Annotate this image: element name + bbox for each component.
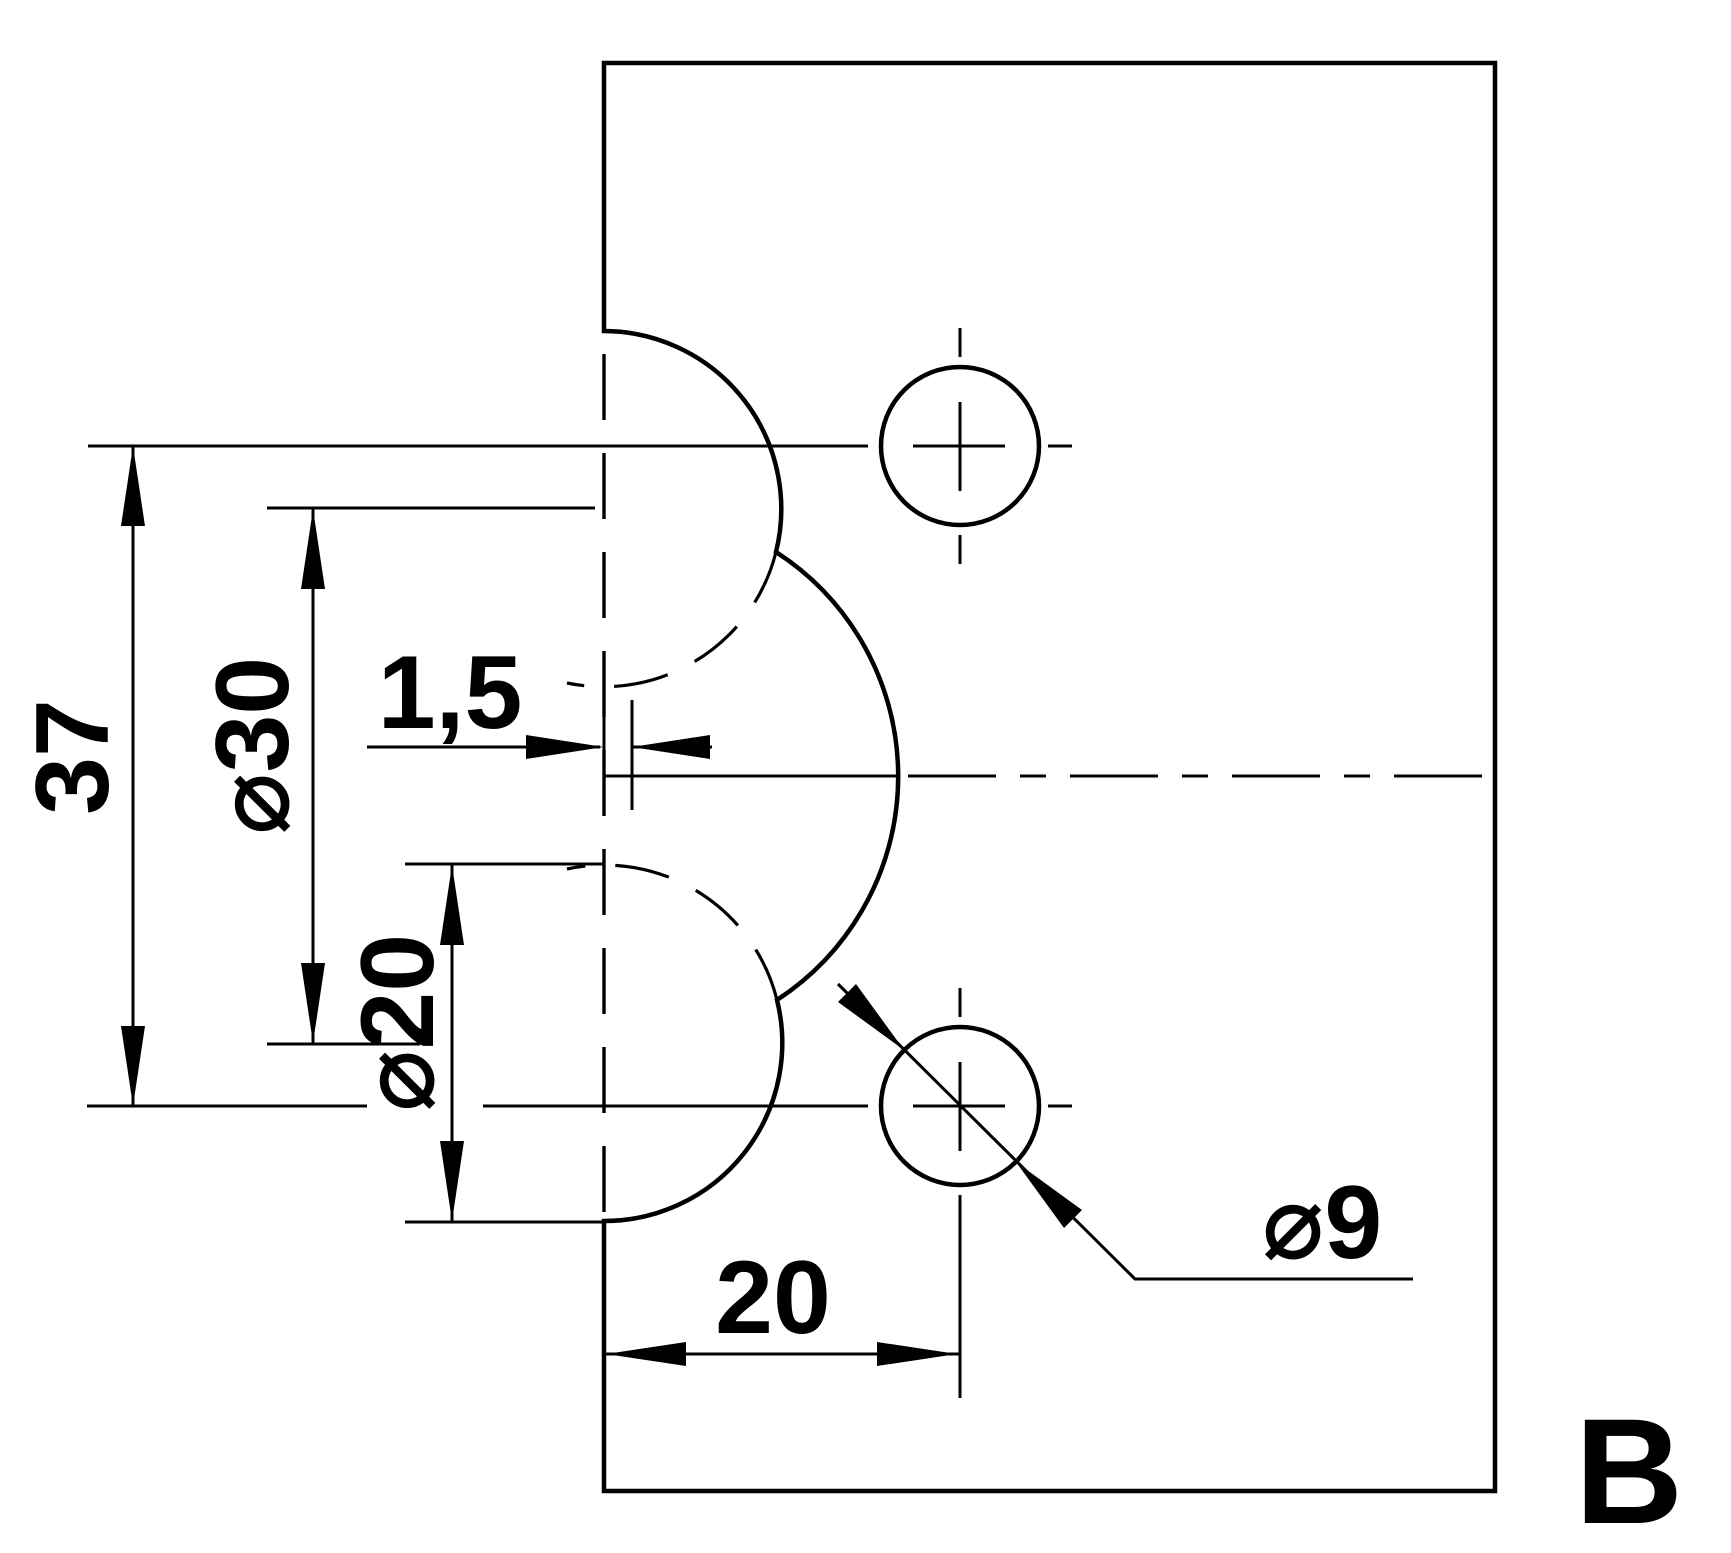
bottom-small-cutout-hidden-arc	[567, 865, 777, 1000]
dim-d30-arrow-down	[301, 963, 325, 1043]
dim-37-label: 37	[15, 699, 131, 815]
dim-20-arrow-right	[877, 1342, 957, 1366]
top-small-cutout-hidden-arc	[567, 552, 776, 687]
dim-d20-label: ⌀20	[340, 934, 456, 1112]
dim-1-5-arrow-right	[526, 735, 604, 759]
drill-hole-bottom	[87, 988, 1072, 1398]
leader-hole-diameter-d9: ⌀9	[838, 984, 1413, 1281]
drawing-sheet: 37 ⌀30 1,5 ⌀20 20 ⌀9	[0, 0, 1731, 1553]
dim-d20-arrow-down	[440, 1141, 464, 1221]
centerlines	[604, 331, 1492, 1221]
dim-d30-arrow-up	[301, 509, 325, 589]
view-label: B	[1575, 1387, 1683, 1553]
dim-1-5-label: 1,5	[378, 635, 523, 751]
dimension-edge-offset-1-5: 1,5	[367, 635, 712, 810]
leader-d9-arrow-lower	[1016, 1162, 1082, 1228]
dimension-hole-edge-distance-20: 20	[604, 1240, 959, 1366]
dim-d30-label: ⌀30	[195, 657, 311, 835]
leader-d9-label: ⌀9	[1262, 1165, 1382, 1281]
dim-37-arrow-down	[121, 1026, 145, 1106]
leader-d9-arrow-upper	[838, 984, 904, 1050]
dim-1-5-arrow-left	[632, 735, 710, 759]
dim-20-label: 20	[715, 1240, 831, 1356]
dimension-hole-spacing-37: 37	[15, 446, 145, 1106]
drill-hole-top	[88, 328, 1072, 564]
technical-drawing-canvas: 37 ⌀30 1,5 ⌀20 20 ⌀9	[0, 0, 1731, 1553]
dim-20-arrow-left	[606, 1342, 686, 1366]
dim-d20-arrow-up	[440, 865, 464, 945]
dimension-small-cutout-d20: ⌀20	[340, 864, 603, 1222]
dim-37-arrow-up	[121, 446, 145, 526]
